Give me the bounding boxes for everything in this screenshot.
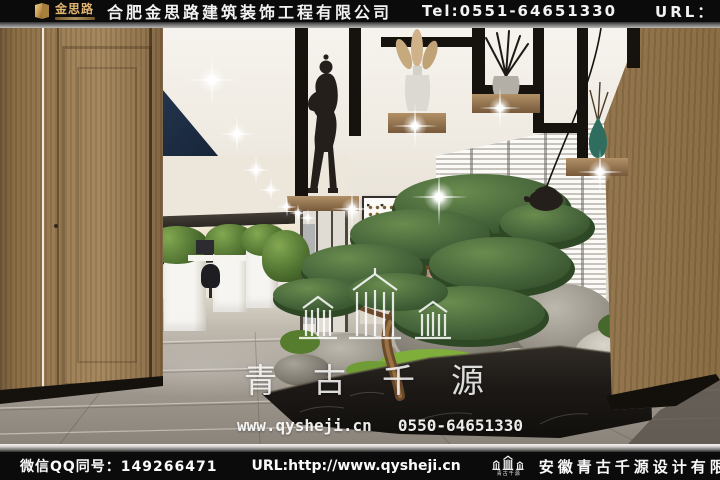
- header-url-label: URL：: [655, 1, 715, 22]
- panel-seam-light: [42, 28, 44, 444]
- header-company-name: 合肥金思路建筑装饰工程有限公司: [107, 0, 392, 23]
- wood-door-left: [62, 46, 152, 386]
- watermark-brand: 青古千源: [194, 354, 534, 402]
- building-logo-icon: [491, 455, 527, 471]
- header-url-group: URL： www.jslu.cn: [655, 1, 720, 22]
- display-shelf: [388, 113, 446, 133]
- watermark-building-logo-icon: [295, 268, 465, 346]
- frame-bevel-bottom: [0, 444, 720, 452]
- header-telephone: Tel:0551-64651330: [422, 2, 617, 20]
- statue-shelf: [287, 196, 359, 211]
- reed-diffuser: [486, 31, 528, 94]
- footer-wechat-qq: 微信QQ同号：149266471: [20, 456, 217, 476]
- footer-url: URL:http://www.qysheji.cn: [251, 458, 460, 474]
- pampas-vase: [392, 29, 440, 111]
- panel-seam-dark: [57, 28, 59, 444]
- interior-render: 青古千源 www.qysheji.cn 0550-64651330: [0, 28, 720, 444]
- footer-logo-caption: 青古千源: [497, 472, 521, 477]
- gold-book-icon: [34, 2, 50, 20]
- promo-image: 金思路 合肥金思路建筑装饰工程有限公司 Tel:0551-64651330 UR…: [0, 0, 720, 480]
- display-shelf: [566, 158, 628, 176]
- footer-bar: 微信QQ同号：149266471 URL:http://www.qysheji.…: [0, 452, 720, 480]
- footer-logo: 青古千源: [491, 455, 527, 477]
- display-shelf: [472, 94, 540, 113]
- brand-subtext-bar: [55, 17, 95, 20]
- watermark-url: www.qysheji.cn: [237, 416, 372, 435]
- door-inner-panel: [77, 67, 137, 363]
- watermark: 青古千源 www.qysheji.cn 0550-64651330: [210, 268, 550, 435]
- door-handle: [54, 224, 58, 228]
- brand-logo: 金思路: [34, 2, 95, 20]
- footer-company-name: 安徽青古千源设计有限公司: [539, 456, 720, 477]
- brand-name: 金思路: [55, 3, 95, 15]
- green-vase: [589, 82, 608, 158]
- statue-silhouette: [308, 54, 338, 193]
- header-bar: 金思路 合肥金思路建筑装饰工程有限公司 Tel:0551-64651330 UR…: [0, 0, 720, 22]
- watermark-phone: 0550-64651330: [398, 416, 523, 435]
